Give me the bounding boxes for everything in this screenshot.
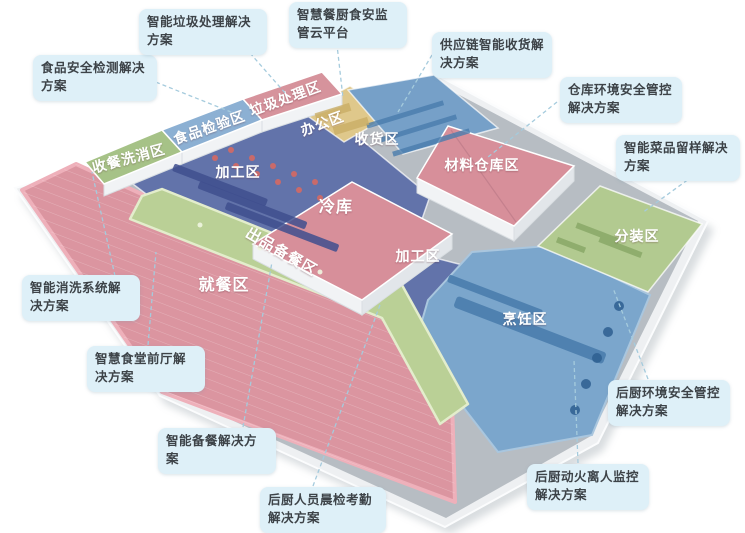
callout-smart-garbage: 智能垃圾处理解决方案 (139, 9, 267, 55)
zone-label-packing: 分装区 (615, 228, 660, 244)
zone-label-cooking: 烹饪区 (503, 311, 548, 327)
smart-cafeteria-floorplan: 收餐洗消区 食品检验区 垃圾处理区 办公区 收货区 加工区 冷库 材料仓库区 加… (0, 0, 745, 533)
callout-supply-chain-receiving: 供应链智能收货解决方案 (432, 32, 552, 78)
callout-smart-kitchen-cloud: 智慧餐厨食安监管云平台 (289, 2, 407, 48)
callout-staff-morning-check: 后厨人员晨检考勤解决方案 (260, 487, 386, 533)
callout-dining-front-hall: 智慧食堂前厅解决方案 (87, 346, 205, 392)
zone-label-receiving: 收货区 (355, 131, 400, 147)
callout-kitchen-fire-monitor: 后厨动火离人监控解决方案 (527, 464, 649, 510)
callout-smart-meal-prep: 智能备餐解决方案 (158, 428, 276, 474)
zone-label-material-warehouse: 材料仓库区 (445, 157, 520, 173)
callout-smart-washing-system: 智能消洗系统解决方案 (22, 275, 140, 321)
callout-food-safety-testing: 食品安全检测解决方案 (33, 55, 157, 101)
callout-kitchen-env-safety: 后厨环境安全管控解决方案 (608, 380, 730, 426)
zone-label-processing-right: 加工区 (395, 248, 441, 264)
zone-label-processing-left: 加工区 (215, 164, 261, 180)
callout-warehouse-env-safety: 仓库环境安全管控解决方案 (560, 77, 682, 123)
callout-smart-dish-sample: 智能菜品留样解决方案 (616, 135, 740, 181)
zone-label-cold-storage: 冷库 (319, 197, 353, 216)
zone-label-dining: 就餐区 (198, 275, 249, 294)
